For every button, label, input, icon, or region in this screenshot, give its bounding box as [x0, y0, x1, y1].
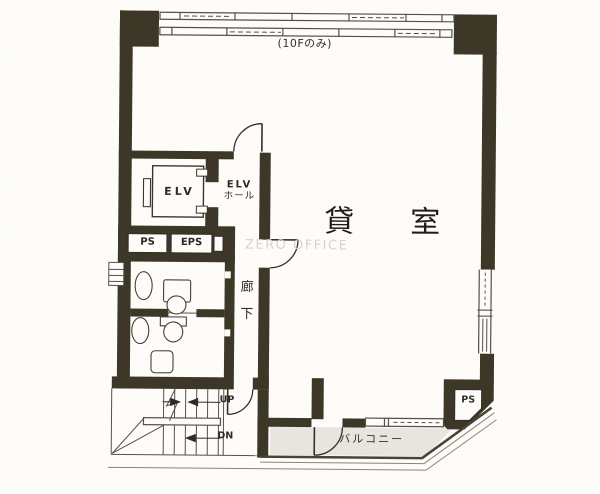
ps-shaft-label: PS [128, 236, 167, 248]
top-floor-note: (10Fのみ) [260, 38, 350, 51]
wall-right-lower [480, 354, 494, 384]
wc1-toilet-bowl [167, 296, 186, 314]
wc1-sink [135, 272, 152, 300]
elevator-hall-label-line2: ホール [216, 191, 262, 202]
wall-alcove-right [311, 378, 323, 419]
ps-shaft-bottom-label: PS [455, 395, 482, 406]
watermark-text: ZERO OFFICE [245, 239, 348, 255]
elevator-label: ELV [152, 186, 203, 199]
wall-wc-divider-right [196, 309, 224, 317]
elevator-jamb-top [197, 169, 208, 176]
stairs-down-label: DN [217, 431, 233, 442]
floor-plan: (10Fのみ) ELV ELV ホール PS EPS 貸室 廊下 UP DN バ… [0, 0, 600, 494]
wc-utility-sink [151, 351, 173, 373]
left-wall-vent [109, 262, 124, 285]
wall-wc-divider-left [130, 309, 168, 317]
wall-corridor-right-mid [258, 268, 270, 390]
balcony-window [365, 417, 443, 429]
wc2-sink [132, 318, 149, 344]
wc2-toilet-bowl [164, 322, 183, 342]
elevator-rail [143, 179, 150, 207]
wall-top-right-column [454, 14, 497, 54]
eps-shaft-label: EPS [171, 237, 212, 249]
wall-bottom-b [342, 418, 365, 427]
floor-plan-scan: (10Fのみ) ELV ELV ホール PS EPS 貸室 廊下 UP DN バ… [0, 0, 600, 494]
shaft-slot [214, 236, 223, 251]
wall-bottom-a [257, 418, 311, 427]
balcony-label: バルコニー [339, 433, 404, 446]
rental-room-label: 貸室 [324, 205, 496, 241]
elevator-jamb-bottom [196, 206, 207, 213]
stairs-up-label: UP [220, 395, 235, 406]
elevator-hall-label: ELV ホール [216, 179, 262, 202]
stair-landing [143, 418, 220, 426]
wall-stair-top [112, 376, 228, 389]
right-window [477, 270, 493, 354]
wall-stair-top-stub [253, 378, 269, 390]
corridor-label: 廊下 [227, 279, 251, 333]
